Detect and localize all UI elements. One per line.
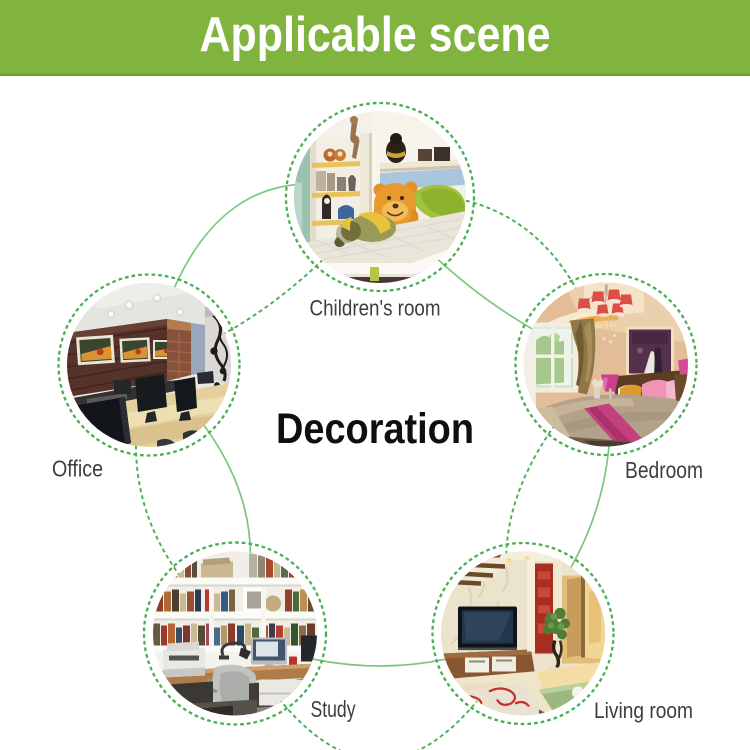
svg-text:Bedroom: Bedroom bbox=[625, 457, 703, 483]
svg-text:Office: Office bbox=[52, 456, 103, 482]
svg-text:Decoration: Decoration bbox=[276, 405, 474, 453]
svg-text:Study: Study bbox=[311, 696, 356, 722]
svg-text:Living room: Living room bbox=[594, 698, 693, 723]
svg-text:Children's room: Children's room bbox=[310, 296, 441, 321]
svg-text:Applicable scene: Applicable scene bbox=[200, 8, 551, 62]
